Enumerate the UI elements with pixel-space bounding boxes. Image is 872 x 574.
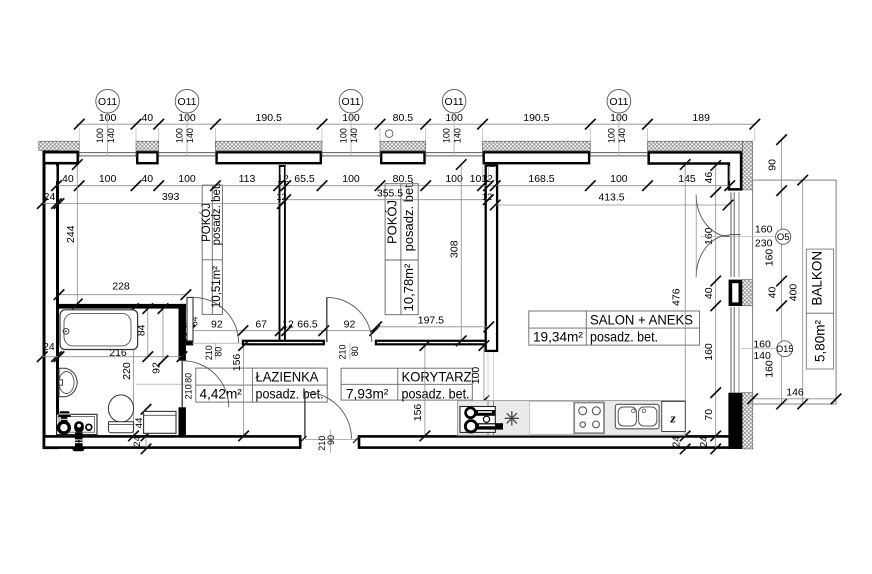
svg-text:476: 476: [671, 288, 683, 306]
svg-text:10: 10: [470, 173, 482, 185]
svg-text:80: 80: [184, 373, 194, 383]
svg-text:67: 67: [255, 318, 267, 330]
svg-text:KORYTARZ: KORYTARZ: [402, 370, 472, 385]
svg-text:230: 230: [755, 237, 773, 249]
svg-text:posadz. bet.: posadz. bet.: [590, 329, 658, 344]
svg-text:19,34m²: 19,34m²: [533, 329, 583, 344]
svg-text:393: 393: [162, 191, 180, 203]
svg-text:146: 146: [786, 386, 804, 398]
svg-text:BALKON: BALKON: [810, 251, 825, 306]
svg-text:24: 24: [672, 436, 683, 448]
svg-text:80.5: 80.5: [393, 173, 414, 185]
svg-text:189: 189: [692, 112, 710, 124]
svg-text:100: 100: [610, 173, 628, 185]
svg-text:100: 100: [342, 173, 360, 185]
svg-text:24: 24: [699, 436, 710, 448]
svg-text:100: 100: [174, 128, 184, 143]
svg-text:160: 160: [763, 249, 775, 267]
svg-text:100: 100: [338, 128, 348, 143]
svg-text:160: 160: [703, 343, 715, 361]
svg-text:190.5: 190.5: [523, 112, 549, 124]
svg-text:113: 113: [239, 173, 256, 185]
svg-text:24: 24: [44, 191, 56, 203]
svg-text:40: 40: [766, 287, 778, 299]
svg-text:156: 156: [412, 404, 424, 422]
svg-text:100: 100: [178, 173, 196, 185]
svg-text:10,78m²: 10,78m²: [401, 263, 416, 311]
svg-text:92: 92: [211, 318, 223, 330]
svg-text:66.5: 66.5: [297, 318, 318, 330]
svg-text:40: 40: [62, 173, 74, 185]
svg-text:POKÓJ: POKÓJ: [385, 200, 400, 244]
svg-text:210: 210: [338, 344, 348, 359]
svg-text:4,42m²: 4,42m²: [200, 387, 243, 402]
svg-text:12: 12: [482, 192, 493, 203]
svg-text:156: 156: [231, 354, 243, 372]
svg-text:160: 160: [753, 338, 771, 350]
svg-text:80.5: 80.5: [393, 112, 414, 124]
svg-text:100: 100: [99, 173, 117, 185]
svg-text:160: 160: [763, 360, 775, 378]
svg-text:220: 220: [121, 362, 133, 380]
svg-text:40: 40: [141, 173, 153, 185]
svg-text:O5: O5: [777, 232, 790, 243]
svg-text:145: 145: [678, 173, 696, 185]
svg-text:210: 210: [184, 384, 194, 399]
svg-text:posadz. bet.: posadz. bet.: [402, 387, 470, 402]
svg-text:O11: O11: [609, 96, 628, 108]
svg-text:92: 92: [344, 318, 356, 330]
svg-text:100: 100: [442, 128, 452, 143]
svg-text:90: 90: [766, 159, 778, 171]
svg-text:100: 100: [95, 128, 105, 143]
svg-text:12: 12: [276, 192, 287, 203]
svg-text:5,80m²: 5,80m²: [813, 319, 828, 362]
svg-text:z: z: [669, 411, 676, 426]
svg-text:140: 140: [753, 350, 771, 362]
svg-text:12: 12: [481, 173, 493, 185]
svg-text:SALON + ANEKS: SALON + ANEKS: [590, 313, 693, 328]
svg-text:80: 80: [350, 346, 360, 356]
svg-text:100: 100: [445, 173, 463, 185]
svg-text:80: 80: [213, 347, 223, 357]
svg-text:7,93m²: 7,93m²: [346, 387, 389, 402]
svg-text:140: 140: [106, 128, 116, 143]
svg-text:100: 100: [606, 128, 616, 143]
svg-text:O11: O11: [341, 96, 360, 108]
svg-text:355.5: 355.5: [377, 187, 403, 199]
svg-text:244: 244: [65, 225, 77, 243]
svg-text:400: 400: [787, 284, 799, 302]
svg-text:140: 140: [617, 128, 627, 143]
svg-text:24: 24: [132, 436, 143, 447]
svg-text:160: 160: [755, 223, 773, 235]
svg-text:160: 160: [703, 227, 715, 245]
svg-text:40: 40: [703, 287, 715, 299]
svg-text:228: 228: [112, 281, 130, 293]
svg-text:140: 140: [452, 128, 462, 143]
svg-text:70: 70: [703, 409, 715, 421]
svg-text:O15: O15: [776, 344, 793, 354]
svg-text:O11: O11: [177, 96, 196, 108]
svg-text:12: 12: [282, 318, 294, 330]
svg-text:ŁAZIENKA: ŁAZIENKA: [256, 370, 320, 385]
svg-text:posadz. bet.: posadz. bet.: [256, 387, 324, 402]
svg-text:100: 100: [470, 367, 482, 385]
svg-text:92: 92: [151, 362, 163, 374]
svg-text:posadz. bet.: posadz. bet.: [211, 183, 223, 246]
svg-text:O11: O11: [98, 96, 117, 108]
svg-text:140: 140: [185, 128, 195, 143]
svg-text:posadz. bet.: posadz. bet.: [401, 181, 416, 252]
svg-text:190.5: 190.5: [256, 112, 282, 124]
svg-text:65.5: 65.5: [294, 173, 315, 185]
svg-text:197.5: 197.5: [418, 314, 444, 326]
svg-text:46: 46: [703, 172, 715, 184]
svg-text:140: 140: [349, 128, 359, 143]
svg-text:O11: O11: [445, 96, 464, 108]
svg-text:24: 24: [43, 341, 55, 353]
svg-text:168.5: 168.5: [528, 173, 554, 185]
svg-text:308: 308: [449, 240, 461, 258]
svg-text:90: 90: [326, 435, 336, 445]
svg-text:40: 40: [141, 112, 153, 124]
svg-text:413.5: 413.5: [598, 192, 624, 204]
